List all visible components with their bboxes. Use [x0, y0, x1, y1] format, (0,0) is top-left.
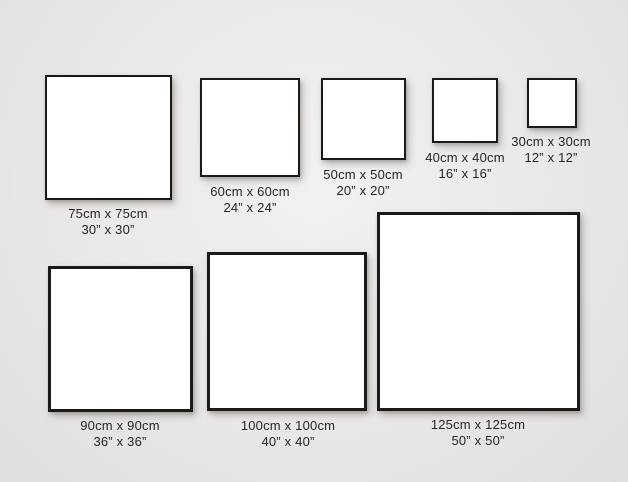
frame-label-30cm: 30cm x 30cm12” x 12”: [471, 134, 628, 165]
label-size-inches: 36” x 36”: [40, 434, 200, 450]
label-size-cm: 75cm x 75cm: [28, 206, 188, 222]
frame-label-100cm: 100cm x 100cm40” x 40”: [208, 418, 368, 449]
label-size-inches: 12” x 12”: [471, 150, 628, 166]
label-size-inches: 30” x 30”: [28, 222, 188, 238]
size-comparison-chart: 75cm x 75cm30” x 30”60cm x 60cm24” x 24”…: [0, 0, 628, 482]
frame-square-125cm: [377, 212, 580, 411]
label-size-inches: 40” x 40”: [208, 434, 368, 450]
frame-square-75cm: [45, 75, 172, 200]
frame-label-125cm: 125cm x 125cm50” x 50”: [398, 417, 558, 448]
label-size-cm: 125cm x 125cm: [398, 417, 558, 433]
label-size-inches: 50” x 50”: [398, 433, 558, 449]
frame-square-90cm: [48, 266, 193, 412]
frame-square-60cm: [200, 78, 300, 177]
frame-square-100cm: [207, 252, 367, 411]
label-size-inches: 20” x 20”: [283, 183, 443, 199]
frame-square-50cm: [321, 78, 406, 160]
label-size-inches: 16” x 16”: [385, 166, 545, 182]
label-size-cm: 30cm x 30cm: [471, 134, 628, 150]
label-size-inches: 24” x 24”: [170, 200, 330, 216]
frame-label-75cm: 75cm x 75cm30” x 30”: [28, 206, 188, 237]
frame-square-30cm: [527, 78, 577, 128]
label-size-cm: 100cm x 100cm: [208, 418, 368, 434]
frame-label-90cm: 90cm x 90cm36” x 36”: [40, 418, 200, 449]
label-size-cm: 90cm x 90cm: [40, 418, 200, 434]
